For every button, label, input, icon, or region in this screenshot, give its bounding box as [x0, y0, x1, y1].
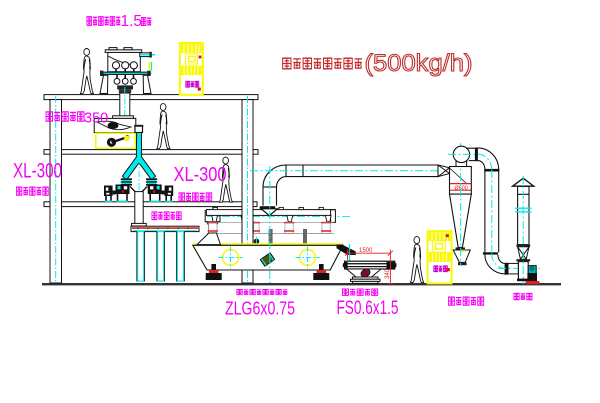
svg-text:FS0.6x1.5: FS0.6x1.5 [337, 298, 399, 319]
svg-text:XL-300: XL-300 [13, 160, 62, 183]
svg-text:(500kg/h): (500kg/h) [365, 50, 473, 77]
svg-text:1.5: 1.5 [121, 13, 143, 30]
svg-text:340: 340 [385, 268, 391, 279]
svg-text:ZLG6x0.75: ZLG6x0.75 [225, 299, 295, 319]
svg-text:XL-300: XL-300 [174, 163, 227, 186]
svg-text:1500: 1500 [359, 248, 373, 254]
svg-text:350: 350 [84, 111, 108, 127]
